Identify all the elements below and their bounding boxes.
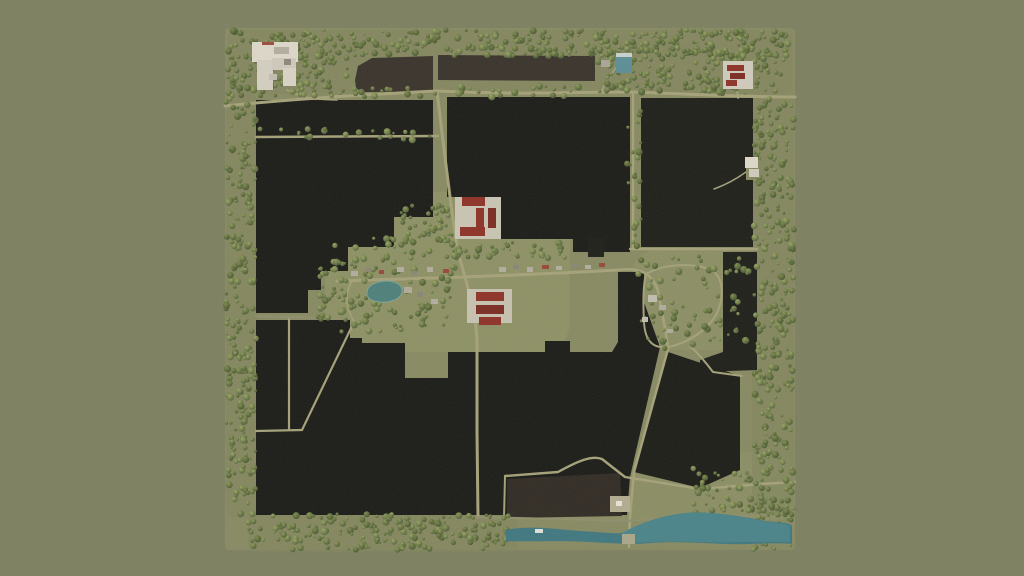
map-canvas <box>0 0 1024 576</box>
map-screenshot <box>0 0 1024 576</box>
grain-overlay <box>0 0 1024 576</box>
